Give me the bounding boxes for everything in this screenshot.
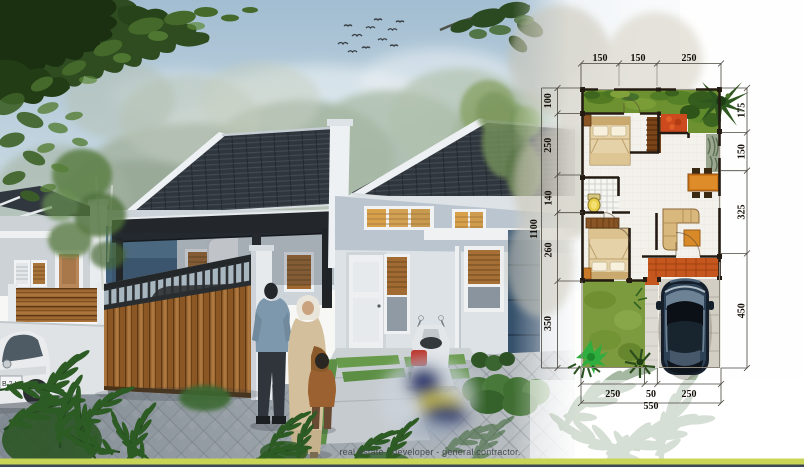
svg-text:550: 550 bbox=[644, 401, 659, 412]
svg-text:250: 250 bbox=[682, 53, 697, 64]
svg-text:100: 100 bbox=[543, 93, 554, 108]
svg-text:250: 250 bbox=[682, 389, 697, 400]
svg-text:150: 150 bbox=[737, 144, 748, 159]
svg-text:250: 250 bbox=[543, 138, 554, 153]
svg-text:250: 250 bbox=[605, 389, 620, 400]
svg-text:450: 450 bbox=[737, 303, 748, 318]
svg-text:140: 140 bbox=[544, 191, 555, 206]
svg-text:150: 150 bbox=[593, 53, 608, 64]
svg-text:175: 175 bbox=[737, 103, 748, 118]
svg-text:real estate - developer - gene: real estate - developer - general contra… bbox=[339, 447, 520, 457]
svg-text:150: 150 bbox=[631, 53, 646, 64]
svg-text:1100: 1100 bbox=[529, 219, 540, 238]
svg-text:260: 260 bbox=[544, 243, 555, 258]
svg-text:350: 350 bbox=[543, 316, 554, 331]
svg-text:325: 325 bbox=[737, 205, 748, 220]
